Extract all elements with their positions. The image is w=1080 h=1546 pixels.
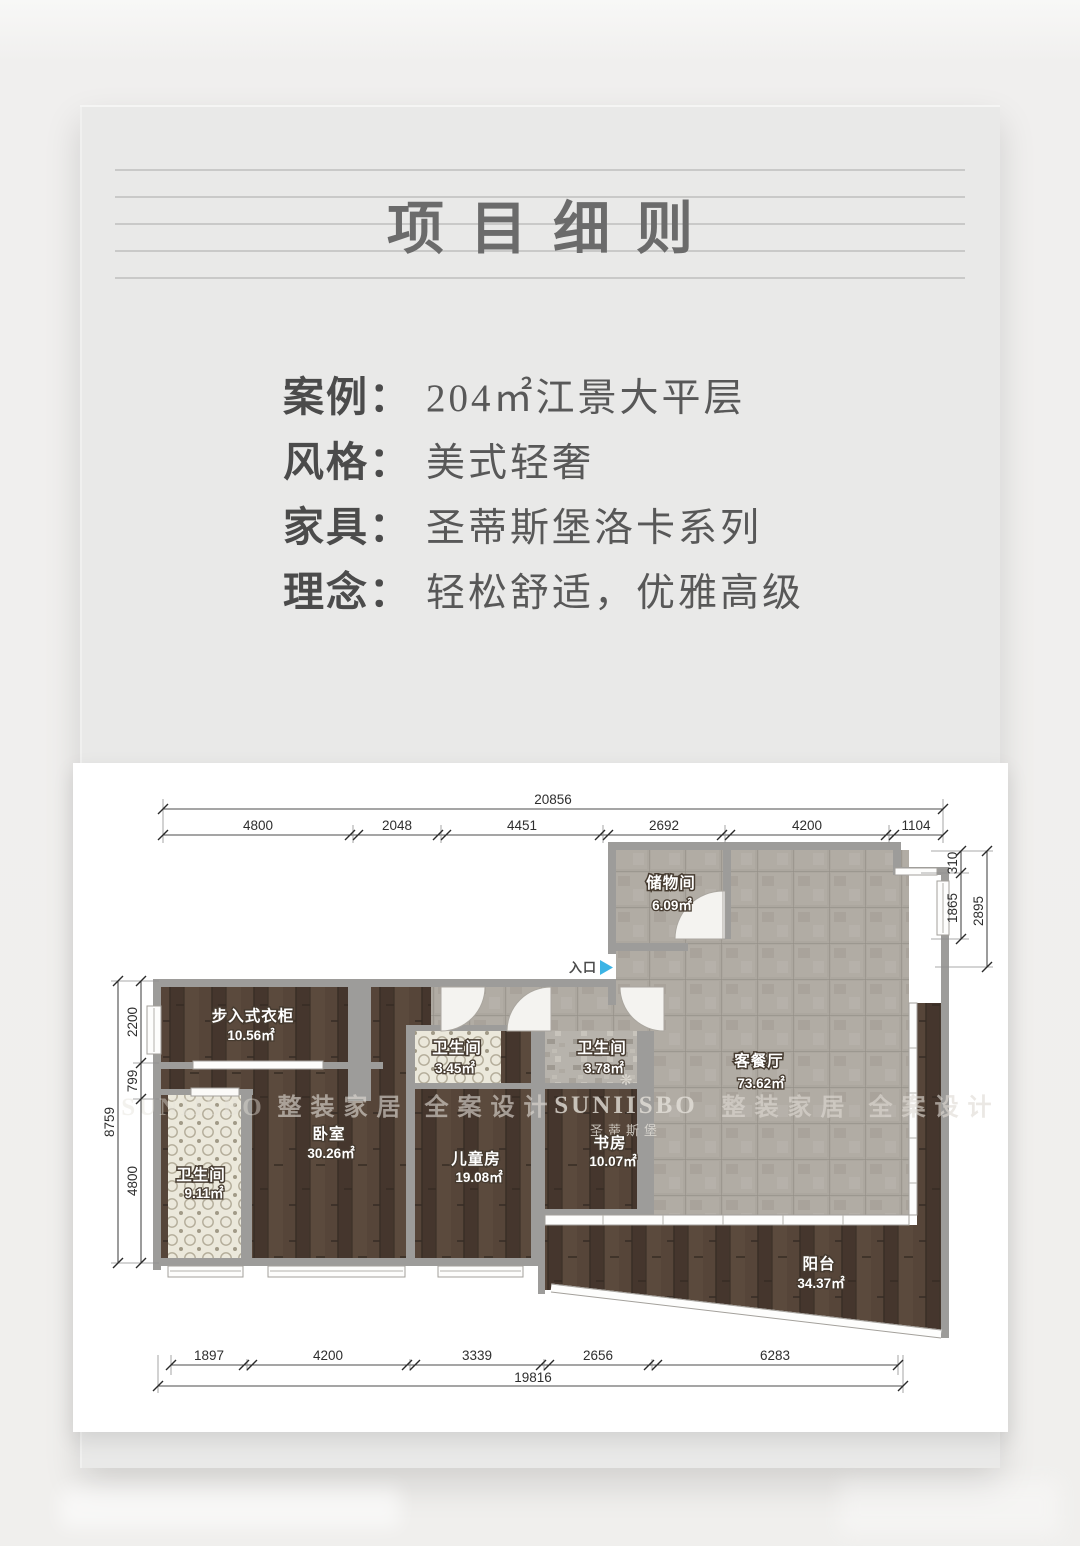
room-label-bath-911: 卫生间 <box>176 1165 226 1184</box>
info-value: 204㎡江景大平层 <box>426 367 746 423</box>
room-label-kids: 儿童房 <box>450 1149 501 1168</box>
dim-top-seg: 2048 <box>382 818 412 833</box>
dim-top-seg: 4200 <box>792 818 822 833</box>
dim-bottom-seg: 6283 <box>760 1348 790 1363</box>
room-area-storage: 6.09㎡ <box>652 897 692 913</box>
info-row-style: 风格： 美式轻奢 <box>283 428 804 493</box>
room-area-study: 10.07㎡ <box>589 1153 637 1169</box>
dim-bottom-total: 19816 <box>514 1370 552 1385</box>
decor-shape <box>840 1480 1060 1535</box>
dim-top-total: 20856 <box>534 792 572 807</box>
decor-shape <box>60 1488 400 1528</box>
room-label-storage: 储物间 <box>645 873 696 892</box>
room-area-living: 73.62㎡ <box>737 1075 785 1091</box>
room-label-bedroom: 卧室 <box>312 1124 345 1143</box>
dim-right-total: 2895 <box>971 896 986 926</box>
room-area-kids: 19.08㎡ <box>455 1169 503 1185</box>
dim-left-seg: 4800 <box>125 1166 140 1196</box>
room-area-bath-911: 9.11㎡ <box>184 1185 224 1201</box>
dim-top-seg: 2692 <box>649 818 679 833</box>
title-rule-5 <box>115 277 965 279</box>
info-value: 美式轻奢 <box>426 432 594 488</box>
dim-top-seg: 1104 <box>901 818 931 833</box>
entrance-label: 入口 <box>569 960 597 975</box>
room-label-living: 客餐厅 <box>734 1051 784 1070</box>
watermark-brand-center: SUNIISBO <box>554 1092 698 1119</box>
room-area-bath-345: 3.45㎡ <box>435 1060 475 1076</box>
room-label-bath-378: 卫生间 <box>577 1038 627 1057</box>
dim-top-seg: 4451 <box>507 818 537 833</box>
room-label-study: 书房 <box>593 1133 626 1152</box>
page-title: 项目细则 <box>80 183 1000 265</box>
dim-bottom-seg: 3339 <box>462 1348 492 1363</box>
dim-top-seg: 4800 <box>243 818 273 833</box>
dim-bottom-seg: 4200 <box>313 1348 343 1363</box>
balcony-floor <box>545 1225 941 1334</box>
title-rule-1 <box>115 169 965 171</box>
dim-right-seg: 310 <box>945 852 960 875</box>
info-label: 理念： <box>283 558 412 618</box>
dim-bottom-seg: 1897 <box>194 1348 224 1363</box>
dim-left-seg: 2200 <box>125 1007 140 1037</box>
info-row-concept: 理念： 轻松舒适，优雅高级 <box>283 558 804 623</box>
floorplan-card: SUNIISBO 整装家居 全案设计 ❋ SUNIISBO 圣蒂斯堡 整装家居 … <box>73 763 1008 1432</box>
dim-right-seg: 1865 <box>945 893 960 923</box>
dim-bottom-seg: 2656 <box>583 1348 613 1363</box>
info-row-case: 案例： 204㎡江景大平层 <box>283 363 804 428</box>
info-label: 家具： <box>283 493 412 553</box>
floorplan-drawing: SUNIISBO 整装家居 全案设计 ❋ SUNIISBO 圣蒂斯堡 整装家居 … <box>73 763 1008 1432</box>
room-area-bedroom: 30.26㎡ <box>307 1145 355 1161</box>
entrance-marker: 入口 <box>569 960 613 975</box>
room-label-balcony: 阳台 <box>802 1254 835 1273</box>
room-area-balcony: 34.37㎡ <box>797 1275 845 1291</box>
dim-left-seg: 799 <box>125 1070 140 1093</box>
info-label: 案例： <box>283 363 412 423</box>
info-label: 风格： <box>283 428 412 488</box>
room-label-closet: 步入式衣柜 <box>212 1006 295 1025</box>
project-info-list: 案例： 204㎡江景大平层 风格： 美式轻奢 家具： 圣蒂斯堡洛卡系列 理念： … <box>283 363 804 623</box>
dim-left-total: 8759 <box>102 1107 117 1137</box>
watermark-slogan-right: 整装家居 全案设计 <box>722 1093 1001 1121</box>
room-label-bath-345: 卫生间 <box>432 1038 482 1057</box>
watermark-slogan-left: 整装家居 全案设计 <box>278 1093 557 1121</box>
info-row-furniture: 家具： 圣蒂斯堡洛卡系列 <box>283 493 804 558</box>
info-value: 轻松舒适，优雅高级 <box>426 562 804 618</box>
room-area-closet: 10.56㎡ <box>227 1027 275 1043</box>
info-value: 圣蒂斯堡洛卡系列 <box>426 497 762 553</box>
room-area-bath-378: 3.78㎡ <box>584 1060 624 1076</box>
